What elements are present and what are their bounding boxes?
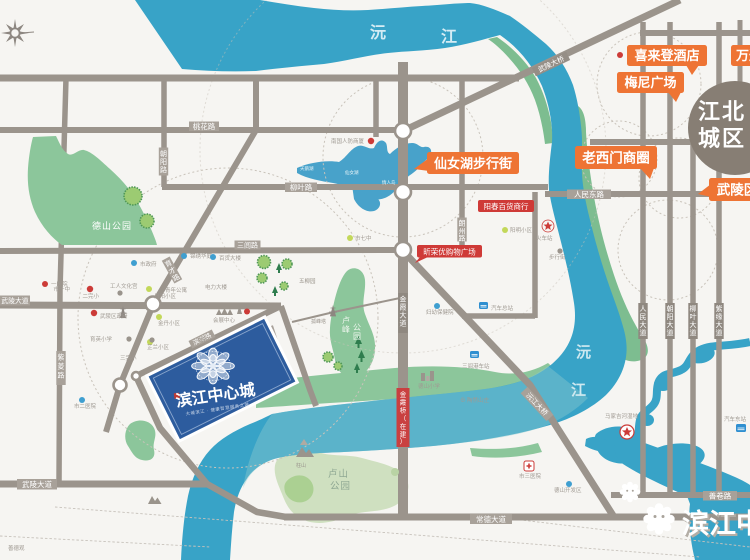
svg-text:金: 金 xyxy=(400,390,407,399)
svg-text:大: 大 xyxy=(667,320,674,329)
svg-text:市三医院: 市三医院 xyxy=(519,472,542,480)
svg-text:公: 公 xyxy=(353,323,361,332)
svg-text:德山小学: 德山小学 xyxy=(418,382,441,390)
svg-text:公园: 公园 xyxy=(330,481,351,492)
svg-text:路: 路 xyxy=(160,165,167,174)
svg-text:道: 道 xyxy=(400,319,407,328)
svg-text:朗: 朗 xyxy=(459,219,466,228)
svg-text:金: 金 xyxy=(400,295,407,304)
svg-text:霞: 霞 xyxy=(400,304,407,312)
svg-text:万达广场: 万达广场 xyxy=(735,48,750,63)
svg-text:紫: 紫 xyxy=(716,305,723,313)
svg-text:在: 在 xyxy=(400,422,407,431)
svg-text:桃花路: 桃花路 xyxy=(193,121,216,131)
svg-text:人: 人 xyxy=(640,305,647,313)
svg-text:三闾路: 三闾路 xyxy=(237,241,258,250)
svg-text:昕荣优购物广场: 昕荣优购物广场 xyxy=(423,246,476,256)
svg-text:柳叶路: 柳叶路 xyxy=(290,182,313,192)
svg-text:工人文化宫: 工人文化宫 xyxy=(110,282,138,290)
svg-text:道: 道 xyxy=(716,328,723,337)
svg-text:园: 园 xyxy=(353,332,361,341)
svg-text:常德大道: 常德大道 xyxy=(476,514,506,524)
svg-text:芷兰小区: 芷兰小区 xyxy=(147,343,170,351)
svg-text:州: 州 xyxy=(459,228,466,236)
svg-text:五柳园: 五柳园 xyxy=(299,277,316,285)
svg-text:峰: 峰 xyxy=(342,324,350,334)
svg-text:汽车总站: 汽车总站 xyxy=(491,304,514,312)
svg-text:武陵大道: 武陵大道 xyxy=(1,296,28,305)
svg-text:霞: 霞 xyxy=(400,399,407,407)
svg-text:三完小: 三完小 xyxy=(120,354,137,362)
svg-text:青年公寓: 青年公寓 xyxy=(165,286,188,294)
svg-text:电力大楼: 电力大楼 xyxy=(205,283,228,291)
svg-text:老西门商圈: 老西门商圈 xyxy=(582,150,650,166)
svg-text:善卷路: 善卷路 xyxy=(709,490,732,500)
svg-text:人民东路: 人民东路 xyxy=(574,189,604,199)
svg-text:⊕ 陶然山庄: ⊕ 陶然山庄 xyxy=(460,396,490,404)
svg-text:市二医院: 市二医院 xyxy=(74,402,97,410)
svg-text:卢山: 卢山 xyxy=(328,468,349,480)
svg-text:一医院: 一医院 xyxy=(51,280,68,288)
svg-text:百货大楼: 百货大楼 xyxy=(219,254,242,262)
svg-text:大: 大 xyxy=(716,320,723,329)
svg-text:建: 建 xyxy=(400,430,407,439)
svg-text:锦绣华庭: 锦绣华庭 xyxy=(190,252,213,260)
svg-text:阳春百货商行: 阳春百货商行 xyxy=(484,201,529,211)
svg-text:武陵大道: 武陵大道 xyxy=(22,479,52,489)
svg-text:汽车东站: 汽车东站 xyxy=(724,415,747,423)
svg-text:阳明小区: 阳明小区 xyxy=(510,226,533,234)
svg-text:）: ） xyxy=(400,438,407,446)
svg-text:妇幼保健院: 妇幼保健院 xyxy=(426,308,454,316)
svg-text:武陵区政府: 武陵区政府 xyxy=(100,312,128,320)
svg-text:市政府: 市政府 xyxy=(140,260,157,268)
svg-text:南国人防商厦: 南国人防商厦 xyxy=(331,137,365,145)
svg-text:（: （ xyxy=(400,415,407,423)
svg-text:梅尼广场: 梅尼广场 xyxy=(624,75,676,90)
svg-text:大: 大 xyxy=(640,320,647,329)
svg-text:叶: 叶 xyxy=(690,312,697,321)
svg-text:枉山: 枉山 xyxy=(296,462,306,469)
svg-text:天鹅湖: 天鹅湖 xyxy=(300,165,314,172)
svg-text:二完小: 二完小 xyxy=(82,292,99,300)
svg-text:三闾港车站: 三闾港车站 xyxy=(462,362,490,370)
svg-text:大: 大 xyxy=(690,320,697,329)
svg-text:朝: 朝 xyxy=(667,305,674,313)
svg-text:滨江中心: 滨江中心 xyxy=(682,508,750,539)
svg-text:江: 江 xyxy=(571,381,586,399)
svg-text:路: 路 xyxy=(459,234,466,243)
svg-text:沅: 沅 xyxy=(576,343,591,361)
svg-text:沅: 沅 xyxy=(370,23,388,42)
svg-text:孤峰塔: 孤峰塔 xyxy=(311,318,326,325)
svg-text:阳: 阳 xyxy=(667,312,674,321)
svg-text:江: 江 xyxy=(441,28,459,46)
svg-text:金丹小区: 金丹小区 xyxy=(158,319,181,327)
svg-text:柳: 柳 xyxy=(690,304,697,313)
svg-text:紫: 紫 xyxy=(58,354,65,362)
svg-text:德山开发区: 德山开发区 xyxy=(554,486,582,494)
svg-text:会展中心: 会展中心 xyxy=(213,316,236,324)
svg-text:道: 道 xyxy=(640,328,647,337)
svg-text:江北: 江北 xyxy=(698,99,746,124)
svg-text:仙女湖步行街: 仙女湖步行街 xyxy=(434,156,512,171)
svg-text:桥: 桥 xyxy=(400,406,407,415)
svg-text:菱: 菱 xyxy=(58,362,65,371)
svg-text:阳: 阳 xyxy=(160,157,167,166)
svg-text:大: 大 xyxy=(400,311,407,320)
svg-text:火车站: 火车站 xyxy=(536,234,553,242)
svg-text:路: 路 xyxy=(58,371,65,380)
svg-text:步行街: 步行街 xyxy=(549,253,566,261)
svg-text:卢: 卢 xyxy=(342,315,350,325)
svg-text:德山公园: 德山公园 xyxy=(92,220,132,231)
svg-text:城区: 城区 xyxy=(698,126,746,151)
svg-text:武陵区: 武陵区 xyxy=(717,182,750,198)
svg-text:朝: 朝 xyxy=(160,150,167,158)
svg-text:喜来登酒店: 喜来登酒店 xyxy=(634,48,699,63)
svg-text:市七中: 市七中 xyxy=(355,234,372,242)
svg-text:善德观: 善德观 xyxy=(8,544,25,552)
svg-text:道: 道 xyxy=(690,328,697,337)
svg-text:道: 道 xyxy=(667,328,674,337)
svg-text:情人岛: 情人岛 xyxy=(382,179,396,186)
svg-text:仙女湖: 仙女湖 xyxy=(345,169,359,176)
svg-text:民: 民 xyxy=(640,313,647,321)
svg-text:育英小学: 育英小学 xyxy=(90,335,113,343)
svg-text:缘: 缘 xyxy=(716,312,723,321)
svg-text:马家吉河湿地: 马家吉河湿地 xyxy=(605,412,639,420)
